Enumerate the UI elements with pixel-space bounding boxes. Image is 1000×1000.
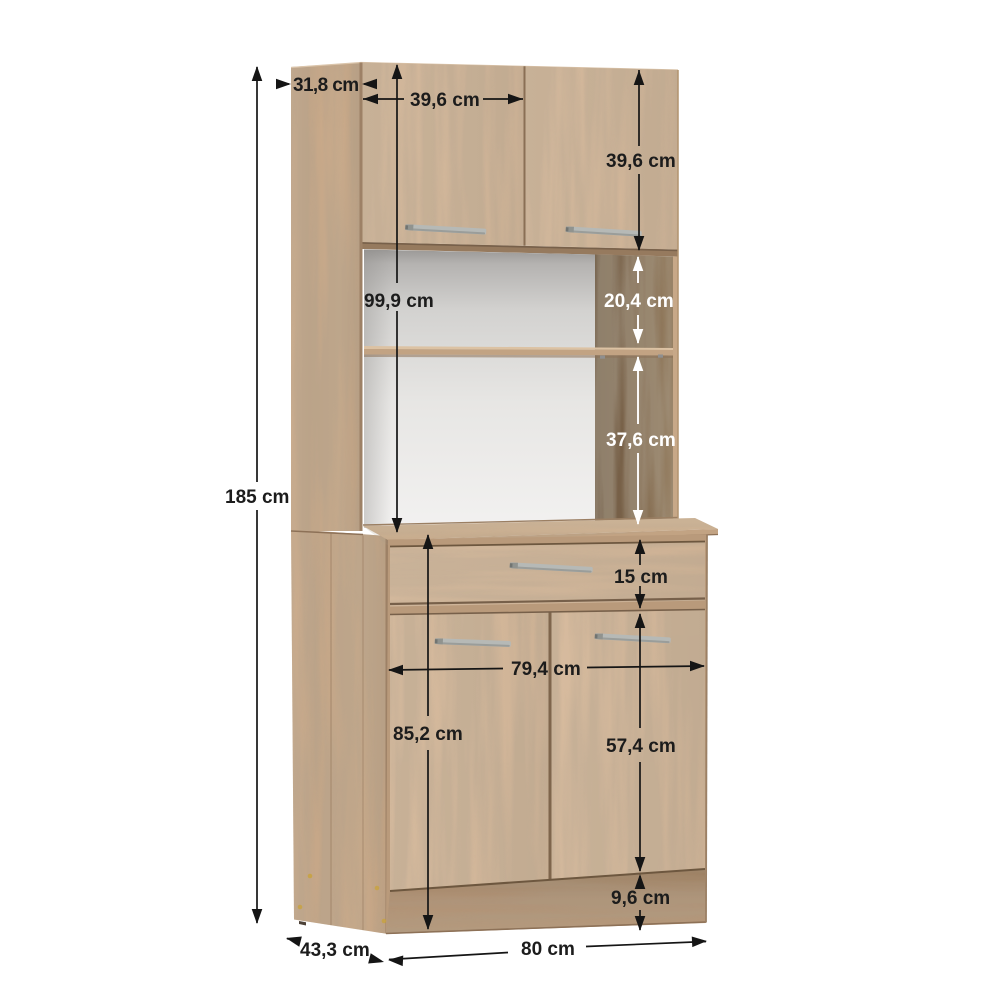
svg-text:80 cm: 80 cm	[521, 939, 575, 960]
svg-text:9,6 cm: 9,6 cm	[611, 888, 670, 909]
svg-text:85,2 cm: 85,2 cm	[393, 724, 463, 745]
svg-text:185 cm: 185 cm	[225, 487, 289, 508]
svg-text:99,9 cm: 99,9 cm	[364, 291, 434, 312]
svg-text:79,4 cm: 79,4 cm	[511, 659, 581, 680]
svg-text:20,4 cm: 20,4 cm	[604, 291, 674, 312]
svg-text:31,8 cm: 31,8 cm	[293, 75, 359, 96]
svg-text:39,6 cm: 39,6 cm	[410, 90, 480, 111]
svg-text:37,6 cm: 37,6 cm	[606, 430, 676, 451]
svg-text:57,4 cm: 57,4 cm	[606, 736, 676, 757]
svg-text:43,3 cm: 43,3 cm	[300, 940, 370, 961]
svg-text:15 cm: 15 cm	[614, 567, 668, 588]
svg-text:39,6 cm: 39,6 cm	[606, 151, 676, 172]
